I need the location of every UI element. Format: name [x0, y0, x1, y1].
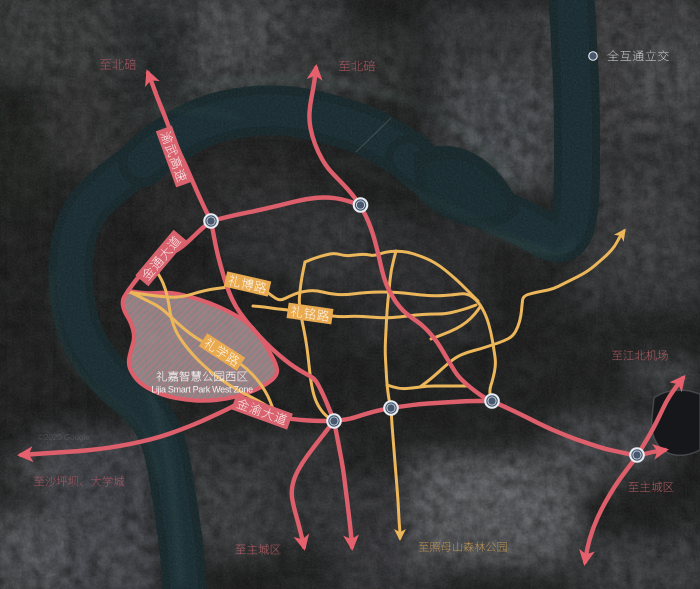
svg-text:©2020 Google: ©2020 Google	[38, 433, 90, 442]
svg-text:Lijia Smart Park West Zone: Lijia Smart Park West Zone	[151, 385, 253, 395]
